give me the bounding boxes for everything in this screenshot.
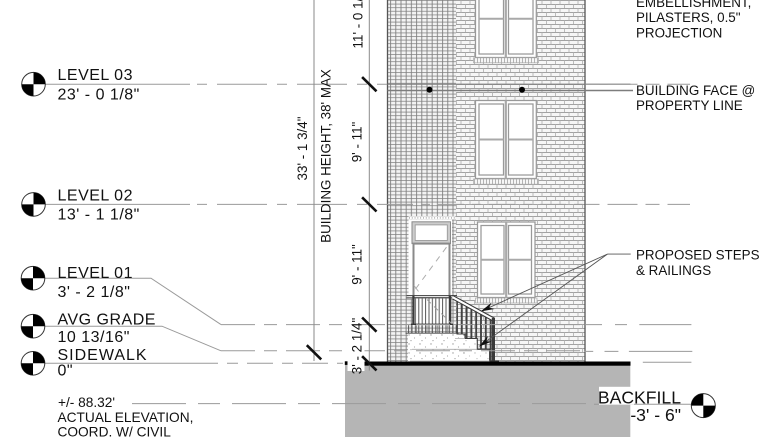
svg-text:AVG GRADE: AVG GRADE xyxy=(58,311,156,328)
svg-text:PILASTERS, 0.5": PILASTERS, 0.5" xyxy=(636,10,741,25)
svg-text:COORD. W/ CIVIL: COORD. W/ CIVIL xyxy=(58,424,172,437)
svg-text:PROPERTY LINE: PROPERTY LINE xyxy=(636,98,743,113)
svg-text:3' - 2 1/8": 3' - 2 1/8" xyxy=(58,284,131,301)
svg-text:9' - 11": 9' - 11" xyxy=(349,244,364,285)
svg-text:10 13/16": 10 13/16" xyxy=(58,329,130,346)
svg-text:11' - 0 1/8": 11' - 0 1/8" xyxy=(351,0,366,48)
svg-text:PROPOSED STEPS: PROPOSED STEPS xyxy=(636,248,760,263)
svg-text:LEVEL 03: LEVEL 03 xyxy=(58,67,133,84)
svg-text:9' - 11": 9' - 11" xyxy=(349,121,364,162)
svg-text:& RAILINGS: & RAILINGS xyxy=(636,263,711,278)
svg-text:ACTUAL ELEVATION,: ACTUAL ELEVATION, xyxy=(58,410,194,425)
svg-text:SIDEWALK: SIDEWALK xyxy=(58,347,148,364)
svg-text:3' - 2 1/4": 3' - 2 1/4" xyxy=(350,318,365,375)
svg-text:BUILDING HEIGHT, 38' MAX: BUILDING HEIGHT, 38' MAX xyxy=(319,69,334,243)
svg-text:33' - 1 3/4": 33' - 1 3/4" xyxy=(295,116,310,180)
svg-text:EMBELLISHMENT,: EMBELLISHMENT, xyxy=(636,0,751,10)
svg-text:-3' - 6": -3' - 6" xyxy=(630,405,681,425)
svg-text:LEVEL 01: LEVEL 01 xyxy=(58,265,133,282)
svg-text:LEVEL 02: LEVEL 02 xyxy=(58,187,133,204)
svg-text:BUILDING FACE @: BUILDING FACE @ xyxy=(636,83,755,98)
svg-text:+/- 88.32': +/- 88.32' xyxy=(58,395,115,410)
svg-text:0": 0" xyxy=(58,363,74,380)
svg-text:13' - 1 1/8": 13' - 1 1/8" xyxy=(58,207,140,224)
svg-text:PROJECTION: PROJECTION xyxy=(636,26,722,41)
svg-text:23' - 0 1/8": 23' - 0 1/8" xyxy=(58,86,140,103)
